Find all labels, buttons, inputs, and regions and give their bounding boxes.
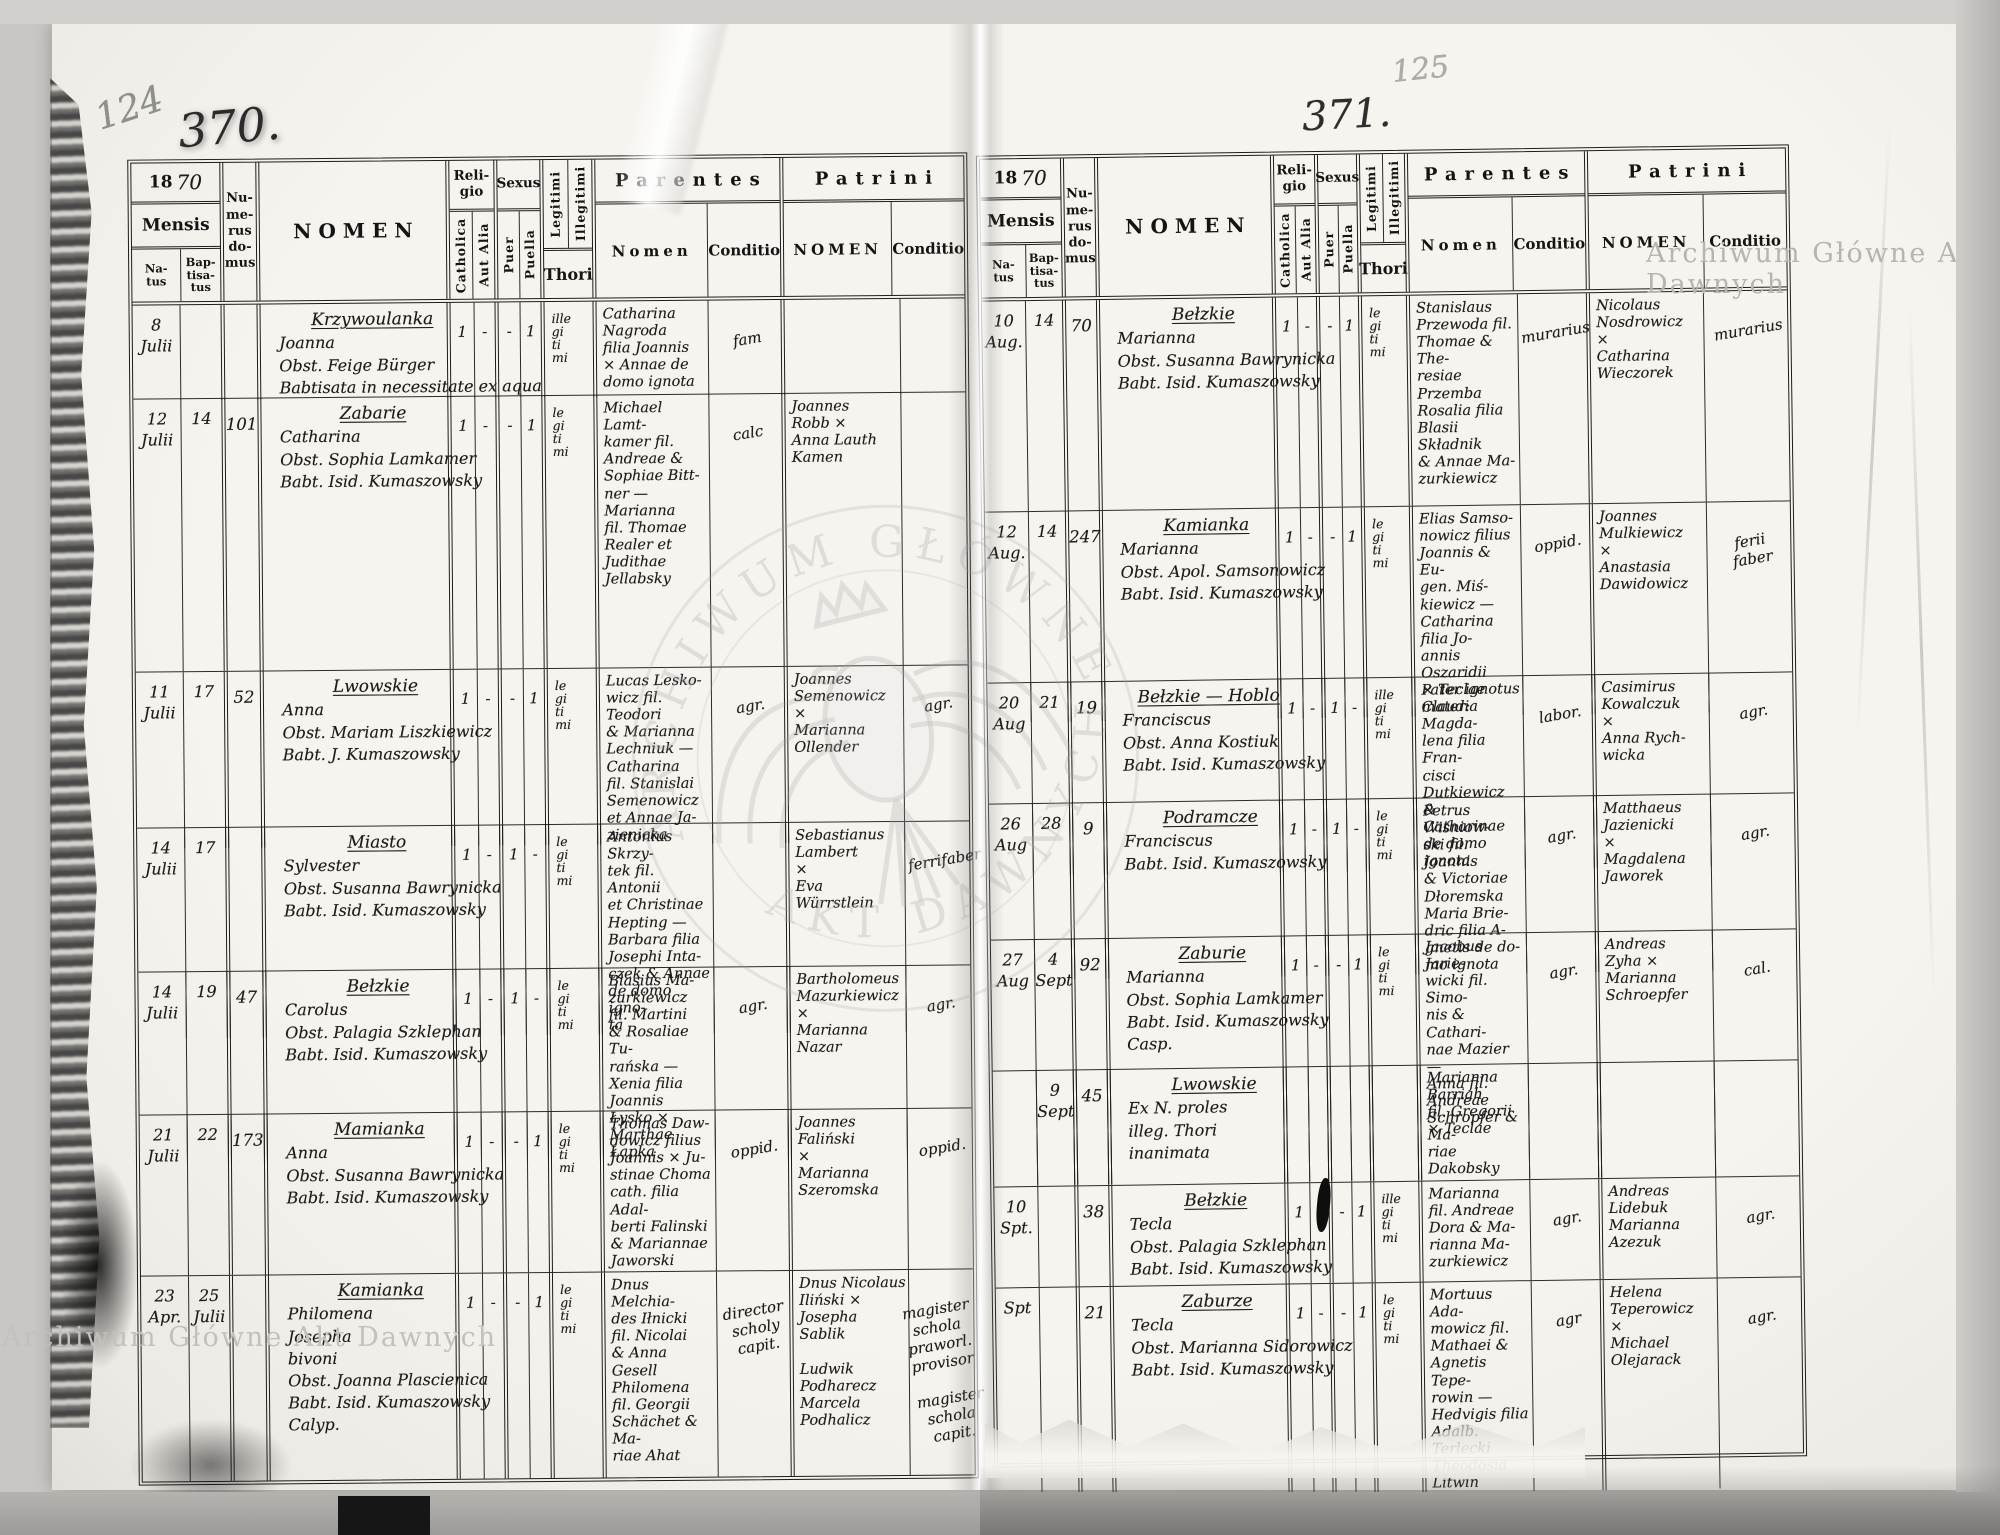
header-parentes-conditio: Conditio — [707, 203, 780, 297]
header-nomen: NOMEN — [1098, 156, 1276, 296]
cell-pat_nomen: Joannes Faliński × Marianna Szeromska — [792, 1109, 909, 1270]
cell-pat_nomen — [1601, 1062, 1717, 1179]
header-parentes-nomen: Nomen — [1409, 197, 1514, 291]
entry-name-line: Joanna — [231, 331, 514, 356]
header-patrini-nomen: NOMEN — [784, 202, 892, 296]
entry-name-line: Babt. Isid. Kumaszowsky — [1086, 1255, 1348, 1281]
entry-name-line: Babt. Isid. Kumaszowsky — [1076, 580, 1338, 606]
entry-name-line: Obst. Palagia Szklephan — [1085, 1233, 1347, 1259]
register-row: 9 Sept45LwowskieEx N. prolesilleg. Thori… — [993, 1060, 1800, 1187]
entry-pat-nomen: Andreas Lidebuk Marianna Azezuk — [1602, 1178, 1716, 1253]
header-religio: Reli- gio — [1274, 155, 1315, 204]
cell-par_conditio: agr. — [1530, 1179, 1603, 1280]
entry-pat-nomen: Andreas Zyha × Marianna Schroepfer — [1599, 931, 1713, 1006]
entry-par-nomen: Stanislaus Przewoda fil. Thomae & The- r… — [1410, 294, 1520, 489]
entry-baptisatus: 22 — [188, 1115, 228, 1146]
entry-thori: le gi ti mi — [1376, 1283, 1421, 1346]
entry-baptisatus: 21 — [1031, 683, 1067, 714]
scanner-background-right — [1956, 0, 2000, 1535]
entry-par-nomen: Marianna Barriah fil. Gregorii × Teclae — [1421, 1064, 1529, 1139]
header-sexus-group: SexusPuerPuella — [1318, 154, 1362, 293]
entry-name-line: Obst. Marianna Sidorowicz — [1087, 1334, 1349, 1360]
entry-name-block: KamiankaMariannaObst. Apol. SamsonowiczB… — [1075, 508, 1338, 606]
header-religio-group: Reli- gioCatholicaAut Alia — [449, 160, 498, 298]
header-aut-alia-cell: Aut Alia — [1294, 206, 1316, 293]
entry-name-line: Casp. — [1083, 1030, 1345, 1056]
entry-name-line: Babt. Isid. Kumaszowsky — [1073, 369, 1335, 395]
entry-name-line: Babt. J. Kumaszowsky — [235, 742, 518, 767]
cell-puella: 1 — [524, 669, 550, 845]
scanned-register-page: 124 370. 125 371. Archiwum Główne Akt Da… — [0, 0, 2000, 1535]
header-nomen: NOMEN — [259, 161, 450, 301]
header-nomen-label: NOMEN — [1098, 156, 1272, 296]
cell-pat_conditio: murarius — [1704, 290, 1790, 501]
cell-baptisatus: 17 — [184, 672, 230, 848]
entry-par-conditio — [1527, 1058, 1599, 1099]
entry-name-line: Catharina — [232, 425, 515, 450]
header-nomen-label: NOMEN — [259, 161, 446, 301]
entry-puella: 1 — [528, 1112, 548, 1150]
header-legitimi: Legitimi — [1363, 165, 1379, 232]
cell-pat_nomen: Nicolaus Nosdrowicz × Catharina Wieczore… — [1590, 292, 1707, 504]
table-header: 1870MensisNa- tusBap- tisa- tusNu- me- r… — [980, 148, 1787, 301]
entry-pat-nomen: Dnus Nicolaus Iliński × Josepha Sablik L… — [793, 1270, 909, 1430]
header-illegitimi-cell: Illegitimi — [1381, 154, 1405, 242]
entry-thori: le gi ti mi — [545, 396, 594, 459]
entry-puella: 1 — [1343, 507, 1362, 545]
entry-natus: 14 Julii — [137, 828, 184, 880]
entry-name-line: Obst. Joanna Plascienica — [240, 1368, 523, 1393]
cell-par_nomen: Michael Lamt- kamer fil. Andreae & Sophi… — [597, 395, 711, 668]
entry-name-line: Babt. Isid. Kumaszowsky — [1080, 850, 1342, 876]
page-number-left: 370. — [176, 96, 283, 159]
header-illegitimi: Illegitimi — [1386, 160, 1402, 235]
register-row: 14 Julii1947BełzkieCarolusObst. Palagia … — [138, 965, 971, 1115]
entry-par-conditio: agr. — [1524, 927, 1599, 986]
header-numerus-label: Nu- me- rus do- mus — [1064, 158, 1096, 296]
entry-par-conditio: oppid. — [1518, 499, 1593, 558]
entry-puella: - — [1345, 678, 1364, 716]
cell-baptisatus: 14 — [1026, 300, 1069, 511]
register-row: 12 Aug.14247KamiankaMariannaObst. Apol. … — [985, 501, 1792, 683]
entry-pat-conditio: agr. — [1706, 666, 1796, 727]
header-puella: Puella — [522, 230, 537, 280]
cell-natus: 12 Julii — [133, 399, 183, 671]
entry-village-name: Kamianka — [239, 1278, 522, 1304]
cell-baptisatus — [1038, 1186, 1079, 1287]
entry-par-conditio: calc — [706, 389, 785, 448]
entry-puella: 1 — [520, 302, 540, 340]
register-row: Spt21ZaburzeTeclaObst. Marianna Sidorowi… — [996, 1277, 1803, 1463]
header-puer-cell: Puer — [1319, 206, 1339, 293]
cell-par_nomen: Catharina Nagroda filia Joannis × Annae … — [596, 301, 709, 397]
cell-par_nomen: Dnus Melchia- des Iłnicki fil. Nicolai &… — [605, 1272, 719, 1478]
cell-pat_nomen: Helena Teperowicz × Michael Olejarack — [1604, 1278, 1721, 1490]
entry-pat-nomen: Helena Teperowicz × Michael Olejarack — [1604, 1279, 1718, 1371]
entry-pat-conditio: agr. — [1714, 1271, 1804, 1332]
register-row: 14 Julii17MiastoSylvesterObst. Susanna B… — [137, 821, 970, 972]
header-mensis-group: 1870MensisNa- tusBap- tisa- tus — [131, 163, 224, 302]
entry-par-nomen: Catharina Nagroda filia Joannis × Annae … — [596, 301, 708, 393]
entry-par-conditio: oppid. — [712, 1105, 791, 1164]
pencil-folio-number-right: 125 — [1390, 49, 1451, 90]
header-illegitimi: Illegitimi — [572, 166, 588, 241]
cell-baptisatus: 14 — [181, 399, 227, 671]
register-row: 21 Julii22173MamiankaAnnaObst. Susanna B… — [140, 1108, 973, 1276]
entry-name-block: ZaburieMariannaObst. Sophia LamkamerBabt… — [1081, 936, 1344, 1056]
header-religio-split: CatholicaAut Alia — [1275, 206, 1316, 294]
cell-puella: 1 — [529, 1273, 555, 1478]
entry-name-block: Bełzkie — HobloFranciscusObst. Anna Kost… — [1078, 679, 1341, 777]
entry-par-conditio — [711, 818, 787, 859]
header-mensis: Mensis — [132, 204, 220, 247]
cell-baptisatus — [181, 305, 226, 400]
entry-par-conditio: fam — [705, 295, 784, 354]
entry-thori: le gi ti mi — [552, 1112, 601, 1175]
cell-natus: 11 Julii — [136, 672, 186, 849]
entry-pat-nomen: Sebastianus Lambert × Eva Würrstlein — [789, 822, 905, 914]
entry-pat-nomen: Joannes Faliński × Marianna Szeromska — [792, 1109, 908, 1201]
header-baptisatus: Bap- tisa- tus — [180, 249, 220, 301]
entry-name-block: LwowskieEx N. prolesilleg. Thoriinanimat… — [1083, 1067, 1346, 1165]
entry-name-line: Babt. Isid. Kumaszowsky — [232, 469, 515, 494]
entry-puella: - — [1347, 799, 1366, 837]
entry-thori: le gi ti mi — [1371, 935, 1416, 998]
cell-baptisatus: 22 — [188, 1115, 233, 1275]
cell-par_conditio: fam — [708, 300, 785, 395]
cell-nomen: MamiankaAnnaObst. Susanna BawrynickaBabt… — [268, 1113, 459, 1275]
entry-thori: le gi ti mi — [548, 669, 597, 732]
year-handwritten: 70 — [1021, 166, 1047, 190]
entry-name-line: Obst. Susanna Bawrynicka — [238, 1163, 521, 1188]
cell-pat_conditio: agr. — [1716, 1176, 1800, 1277]
cell-pat_nomen: Dnus Nicolaus Iliński × Josepha Sablik L… — [793, 1270, 911, 1476]
header-legitimi-cell: Legitimi — [543, 160, 567, 248]
cell-par_nomen: Lucas Lesko- wicz fil. Teodori & Mariann… — [600, 668, 714, 845]
scanner-shadow-bottom — [980, 1466, 2000, 1535]
register-row: 10 Aug.1470BełzkieMariannaObst. Susanna … — [982, 290, 1790, 512]
header-natus: Na- tus — [132, 249, 180, 301]
entry-name-line: bivoni — [240, 1346, 523, 1371]
header-sexus-split: PuerPuella — [1319, 205, 1358, 293]
header-catholica: Catholica — [1277, 212, 1293, 288]
entry-par-conditio: agr. — [711, 962, 790, 1021]
entry-baptisatus: 4 Sept — [1035, 939, 1072, 991]
cell-thori: le gi ti mi — [545, 396, 599, 668]
cell-thori: le gi ti mi — [548, 669, 602, 846]
scanner-background-top — [0, 0, 2000, 24]
entry-name-line: Anna — [238, 1141, 521, 1166]
entry-puella: - — [525, 825, 545, 863]
year-handwritten: 70 — [176, 170, 202, 194]
entry-thori — [1373, 1066, 1417, 1077]
entry-par-nomen: Michael Lamt- kamer fil. Andreae & Sophi… — [597, 395, 710, 589]
header-thori: Thori — [544, 251, 592, 298]
entry-pat-nomen — [784, 299, 899, 305]
entry-name-block: BełzkieCarolusObst. Palagia SzklephanBab… — [237, 969, 521, 1066]
cell-par_nomen: Jacobus Jarie- wicki fil. Simo- nis & Ca… — [1419, 933, 1530, 1179]
cell-thori: le gi ti mi — [552, 1112, 605, 1272]
cell-thori: ille gi ti mi — [544, 302, 597, 397]
table-header: 1870MensisNa- tusBap- tisa- tusNu- me- r… — [131, 156, 964, 305]
entry-par-conditio: agr. — [1522, 791, 1597, 850]
header-patrini-group: PatriniNOMENConditio — [1588, 148, 1787, 289]
register-table: 1870MensisNa- tusBap- tisa- tusNu- me- r… — [976, 144, 1807, 1467]
header-catholica: Catholica — [453, 217, 469, 293]
ink-stain — [44, 1120, 154, 1410]
entry-name-line: Babt. Isid. Kumaszowsky — [238, 1185, 521, 1210]
entry-name-line: Obst. Mariam Liszkiewicz — [234, 720, 517, 745]
header-legitimi-split: LegitimiIllegitimi — [1360, 154, 1405, 243]
header-puer: Puer — [1321, 231, 1337, 268]
cell-par_conditio: murarius — [1518, 293, 1593, 504]
entry-baptisatus: 14 — [1029, 512, 1065, 543]
entry-baptisatus: 14 — [1026, 301, 1062, 332]
cell-pat_nomen: Joannes Semenowicz × Marianna Ollender — [788, 666, 906, 843]
entry-puella: 1 — [521, 396, 541, 434]
entry-pat-conditio: cal. — [1710, 923, 1800, 984]
cell-pat_conditio — [1715, 1060, 1800, 1176]
entry-par-conditio: director scholy capit. — [711, 1266, 796, 1361]
entry-par-nomen: Lucas Lesko- wicz fil. Teodori & Mariann… — [600, 668, 713, 845]
cell-nomen: LwowskieAnnaObst. Mariam LiszkiewiczBabt… — [264, 670, 456, 848]
entry-village-name: Zabarie — [232, 401, 515, 427]
entry-thori: le gi ti mi — [549, 825, 598, 888]
cell-par_conditio: director scholy capit. — [717, 1271, 795, 1477]
cell-nomen: BełzkieMariannaObst. Susanna BawrynickaB… — [1100, 298, 1279, 510]
cell-baptisatus: 9 Sept — [1037, 1070, 1079, 1186]
entry-pat-conditio: ferii faber — [1702, 495, 1795, 574]
entry-village-name: Bełzkie — [237, 974, 520, 1000]
year-printed: 18 — [149, 172, 173, 192]
cell-thori — [1373, 1066, 1423, 1182]
header-legitimi: Legitimi — [548, 171, 564, 238]
header-patrini: Patrini — [783, 156, 963, 200]
entry-par-nomen: Marianna fil. Andreae Dora & Ma- rianna … — [1422, 1180, 1530, 1272]
entry-pat-nomen — [1601, 1062, 1714, 1069]
header-parentes-nomen: Nomen — [596, 204, 708, 298]
entry-village-name: Miasto — [235, 830, 518, 856]
header-patrini-split: NOMENConditio — [784, 201, 965, 296]
entry-name-line: Obst. Feige Bürger — [231, 353, 514, 378]
cell-par_conditio: oppid. — [716, 1110, 793, 1271]
entry-thori: ille gi ti mi — [1374, 1182, 1419, 1245]
entry-par-conditio: agr. — [708, 662, 787, 721]
entry-puella: - — [526, 969, 546, 1007]
entry-name-line: Babt. Isid. Kumaszowsky — [1079, 751, 1341, 777]
entry-name-line: Babt. Isid. Kumaszowsky — [1087, 1356, 1349, 1382]
entry-baptisatus — [1040, 1287, 1076, 1298]
register-row: 12 Julii14101ZabarieCatharinaObst. Sophi… — [133, 392, 967, 672]
entry-puella: 1 — [1349, 935, 1368, 973]
cell-puella — [1351, 1066, 1375, 1181]
header-natus-baptisatus: Na- tusBap- tisa- tus — [132, 249, 220, 302]
entry-name-line: Sylvester — [236, 854, 519, 879]
entry-pat-conditio: agr. — [1713, 1170, 1803, 1231]
entry-name-line: Obst. Susanna Bawrynicka — [1073, 347, 1335, 373]
entry-thori: le gi ti mi — [1369, 799, 1414, 862]
entry-puella: 1 — [1352, 1182, 1371, 1220]
cell-thori: le gi ti mi — [1362, 296, 1413, 507]
header-illegitimi-cell: Illegitimi — [567, 160, 592, 248]
entry-baptisatus: 28 — [1033, 804, 1069, 835]
header-patrini-conditio: Conditio — [1702, 193, 1786, 287]
cell-puella: 1 — [521, 396, 547, 668]
register-row: 26 Aug289PodramczeFranciscusBabt. Isid. … — [989, 793, 1796, 940]
cell-thori: ille gi ti mi — [1374, 1182, 1423, 1283]
entry-par-conditio: agr — [1528, 1275, 1603, 1334]
entry-pat-conditio: agr. — [1708, 787, 1798, 848]
entry-thori: le gi ti mi — [1362, 296, 1407, 359]
entry-thori: le gi ti mi — [550, 969, 599, 1032]
cell-par_nomen: Marianna fil. Andreae Dora & Ma- rianna … — [1422, 1180, 1531, 1281]
header-catholica-cell: Catholica — [1275, 206, 1296, 293]
entry-puella: 1 — [1340, 296, 1359, 334]
header-sexus-split: PuerPuella — [498, 211, 541, 298]
entry-par-nomen: Dnus Melchia- des Iłnicki fil. Nicolai &… — [605, 1272, 718, 1466]
header-sexus: Sexus — [497, 160, 539, 208]
cell-pat_nomen: Andreas Lidebuk Marianna Azezuk — [1602, 1178, 1717, 1280]
entry-pat-conditio: murarius — [1701, 284, 1791, 345]
header-catholica-cell: Catholica — [450, 212, 472, 299]
header-numerus-domus: Nu- me- rus do- mus — [223, 163, 260, 301]
entry-village-name: Lwowskie — [234, 674, 517, 700]
header-parentes-split: NomenConditio — [1409, 196, 1586, 291]
cell-nomen: BełzkieTeclaObst. Palagia SzklephanBabt.… — [1112, 1183, 1289, 1285]
cell-par_conditio: calc — [709, 394, 787, 667]
header-legitimi-group: LegitimiIllegitimiThori — [1360, 154, 1410, 293]
entry-puella: 1 — [1354, 1283, 1373, 1321]
entry-name-block: PodramczeFranciscusBabt. Isid. Kumaszows… — [1079, 800, 1341, 876]
register-table: 1870MensisNa- tusBap- tisa- tusNu- me- r… — [127, 152, 979, 1485]
entry-pat-nomen: Casimirus Kowalczuk × Anna Rych- wicka — [1595, 674, 1709, 766]
entry-baptisatus — [181, 305, 221, 315]
entry-pat-nomen: Bartholomeus Mazurkiewicz × Marianna Naz… — [790, 966, 906, 1058]
entry-name-block: LwowskieAnnaObst. Mariam LiszkiewiczBabt… — [234, 669, 518, 766]
header-religio-split: CatholicaAut Alia — [450, 211, 495, 298]
header-patrini-group: PatriniNOMENConditio — [783, 156, 964, 296]
cell-puella: 1 — [528, 1112, 553, 1272]
entry-name-line: Babt. Isid. Kumaszowsky — [236, 898, 519, 923]
entry-name-block: MamiankaAnnaObst. Susanna BawrynickaBabt… — [238, 1112, 522, 1209]
header-thori: Thori — [1361, 245, 1406, 293]
cell-nomen: KrzywoulankaJoannaObst. Feige BürgerBabt… — [260, 303, 451, 399]
entry-thori: ille gi ti mi — [544, 302, 593, 365]
header-puer-cell: Puer — [498, 211, 519, 298]
cell-nomen: ZabarieCatharinaObst. Sophia LamkamerBab… — [261, 397, 453, 671]
cell-natus: 8 Julii — [133, 305, 182, 400]
entry-baptisatus: 17 — [184, 672, 224, 703]
entry-baptisatus: 19 — [186, 972, 226, 1003]
header-parentes-conditio: Conditio — [1512, 196, 1586, 290]
entry-name-line: Obst. Sophia Lamkamer — [1082, 986, 1344, 1012]
register-row: 20 Aug2119Bełzkie — HobloFranciscusObst.… — [987, 672, 1794, 804]
entry-name-line: Anna — [234, 698, 517, 723]
entry-natus: 14 Julii — [138, 972, 185, 1024]
entry-par-nomen: Jacobus Jarie- wicki fil. Simo- nis & Ca… — [1419, 933, 1529, 1179]
header-patrini: Patrini — [1588, 148, 1786, 193]
cell-puella: 1 — [1340, 296, 1365, 506]
header-legitimi-group: LegitimiIllegitimiThori — [543, 160, 596, 298]
header-legitimi-cell: Legitimi — [1360, 154, 1383, 242]
register-row: 11 Julii1752LwowskieAnnaObst. Mariam Lis… — [136, 665, 969, 828]
entry-name-line: Babt. Isid. Kumaszowsky — [1082, 1008, 1344, 1034]
entry-par-conditio: agr. — [1527, 1174, 1602, 1233]
register-row: 10 Spt.38BełzkieTeclaObst. Palagia Szkle… — [994, 1176, 1800, 1288]
header-puella-cell: Puella — [518, 211, 540, 298]
book-gutter-fold — [948, 22, 1004, 1490]
entry-pat-nomen: Joannes Semenowicz × Marianna Ollender — [788, 666, 904, 758]
cell-thori: le gi ti mi — [553, 1273, 607, 1478]
entry-name-block: KrzywoulankaJoannaObst. Feige BürgerBabt… — [231, 302, 515, 399]
header-parentes-split: NomenConditio — [596, 203, 781, 298]
header-religio-group: Reli- gioCatholicaAut Alia — [1274, 155, 1320, 294]
page-number-right: 371. — [1301, 90, 1392, 141]
header-parentes: Parentes — [1408, 151, 1585, 195]
entry-name-block: BełzkieTeclaObst. Palagia SzklephanBabt.… — [1085, 1183, 1348, 1281]
header-year: 1870 — [131, 163, 219, 202]
entry-name-line: Carolus — [237, 998, 520, 1023]
register-row: 27 Aug4 Sept92ZaburieMariannaObst. Sophi… — [991, 929, 1798, 1071]
entry-village-name: Mamianka — [238, 1117, 521, 1143]
entry-puella: 1 — [524, 669, 544, 707]
entry-baptisatus: 9 Sept — [1037, 1070, 1074, 1122]
entry-baptisatus: 14 — [181, 399, 221, 430]
entry-name-line: Babt. Isid. Kumaszowsky — [237, 1042, 520, 1067]
entry-name-line: Philomena — [239, 1302, 522, 1327]
header-aut-alia-cell: Aut Alia — [471, 211, 494, 298]
header-puella-cell: Puella — [1337, 205, 1358, 292]
header-sexus: Sexus — [1318, 154, 1357, 203]
header-numerus-label: Nu- me- rus do- mus — [223, 163, 256, 301]
cell-pat_nomen: Joannes Robb × Anna Lauth Kamen — [785, 393, 903, 666]
cell-par_nomen: Thomas Daw- dowicz filius Joannis × Ju- … — [604, 1111, 717, 1272]
entry-baptisatus: 25 Julii — [189, 1276, 229, 1328]
cell-par_nomen: Stanislaus Przewoda fil. Thomae & The- r… — [1410, 294, 1521, 505]
header-aut-alia: Aut Alia — [1298, 217, 1314, 281]
entry-natus: 11 Julii — [136, 672, 183, 724]
entry-par-nomen: Thomas Daw- dowicz filius Joannis × Ju- … — [604, 1111, 716, 1271]
entry-pat-nomen: Joannes Robb × Anna Lauth Kamen — [785, 393, 901, 467]
header-numerus-domus: Nu- me- rus do- mus — [1064, 158, 1100, 296]
cell-pat_conditio: agr. — [1718, 1277, 1804, 1488]
cell-par_conditio — [1529, 1063, 1603, 1179]
entry-par-conditio: labor. — [1520, 670, 1595, 729]
entry-name-block: MiastoSylvesterObst. Susanna BawrynickaB… — [235, 825, 519, 922]
scan-artifact-black-mark — [338, 1496, 430, 1535]
register-row: 8 JuliiKrzywoulankaJoannaObst. Feige Bür… — [133, 298, 966, 399]
entry-name-line: inanimata — [1084, 1139, 1346, 1165]
entry-natus: 12 Julii — [133, 399, 180, 451]
entry-pat-nomen: Matthaeus Jazienicki × Magdalena Jaworek — [1597, 795, 1711, 887]
entry-name-line: Obst. Sophia Lamkamer — [232, 447, 515, 472]
cell-pat_nomen — [784, 299, 901, 395]
cell-puella: 1 — [1352, 1182, 1375, 1282]
entry-name-line: Obst. Palagia Szklephan — [237, 1020, 520, 1045]
header-puella: Puella — [1340, 224, 1356, 274]
header-aut-alia: Aut Alia — [476, 223, 492, 287]
entry-par-conditio: murarius — [1515, 288, 1590, 347]
header-parentes-group: ParentesNomenConditio — [1408, 151, 1590, 291]
entry-village-name: Krzywoulanka — [231, 307, 514, 333]
header-legitimi-split: LegitimiIllegitimi — [543, 160, 592, 248]
entry-name-line: Obst. Apol. Samsonowicz — [1076, 558, 1338, 584]
entry-name-block: BełzkieMariannaObst. Susanna BawrynickaB… — [1072, 297, 1335, 395]
entry-pat-conditio — [1713, 1054, 1800, 1098]
cell-nomen: LwowskieEx N. prolesilleg. Thoriinanimat… — [1111, 1067, 1289, 1184]
entry-puella — [1351, 1066, 1369, 1086]
entry-pat-nomen: Nicolaus Nosdrowicz × Catharina Wieczore… — [1590, 292, 1704, 384]
